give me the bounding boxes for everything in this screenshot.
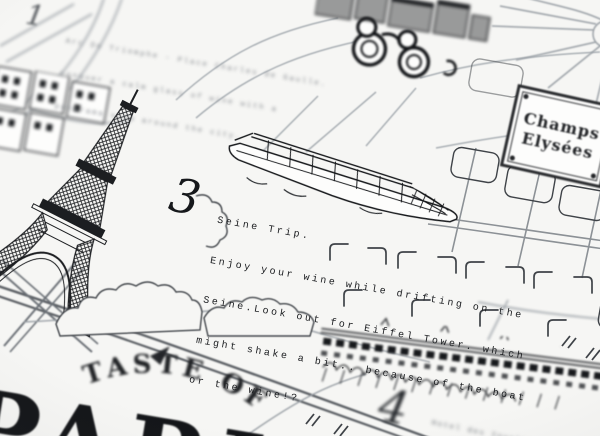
note-line: Hotel des Invalides. bbox=[430, 419, 570, 436]
etoile-roundabout-icon bbox=[492, 0, 600, 104]
street-sign-panel: Champs Elysées bbox=[507, 91, 600, 181]
paris-map-photo: Champs Elysées bbox=[0, 0, 600, 436]
